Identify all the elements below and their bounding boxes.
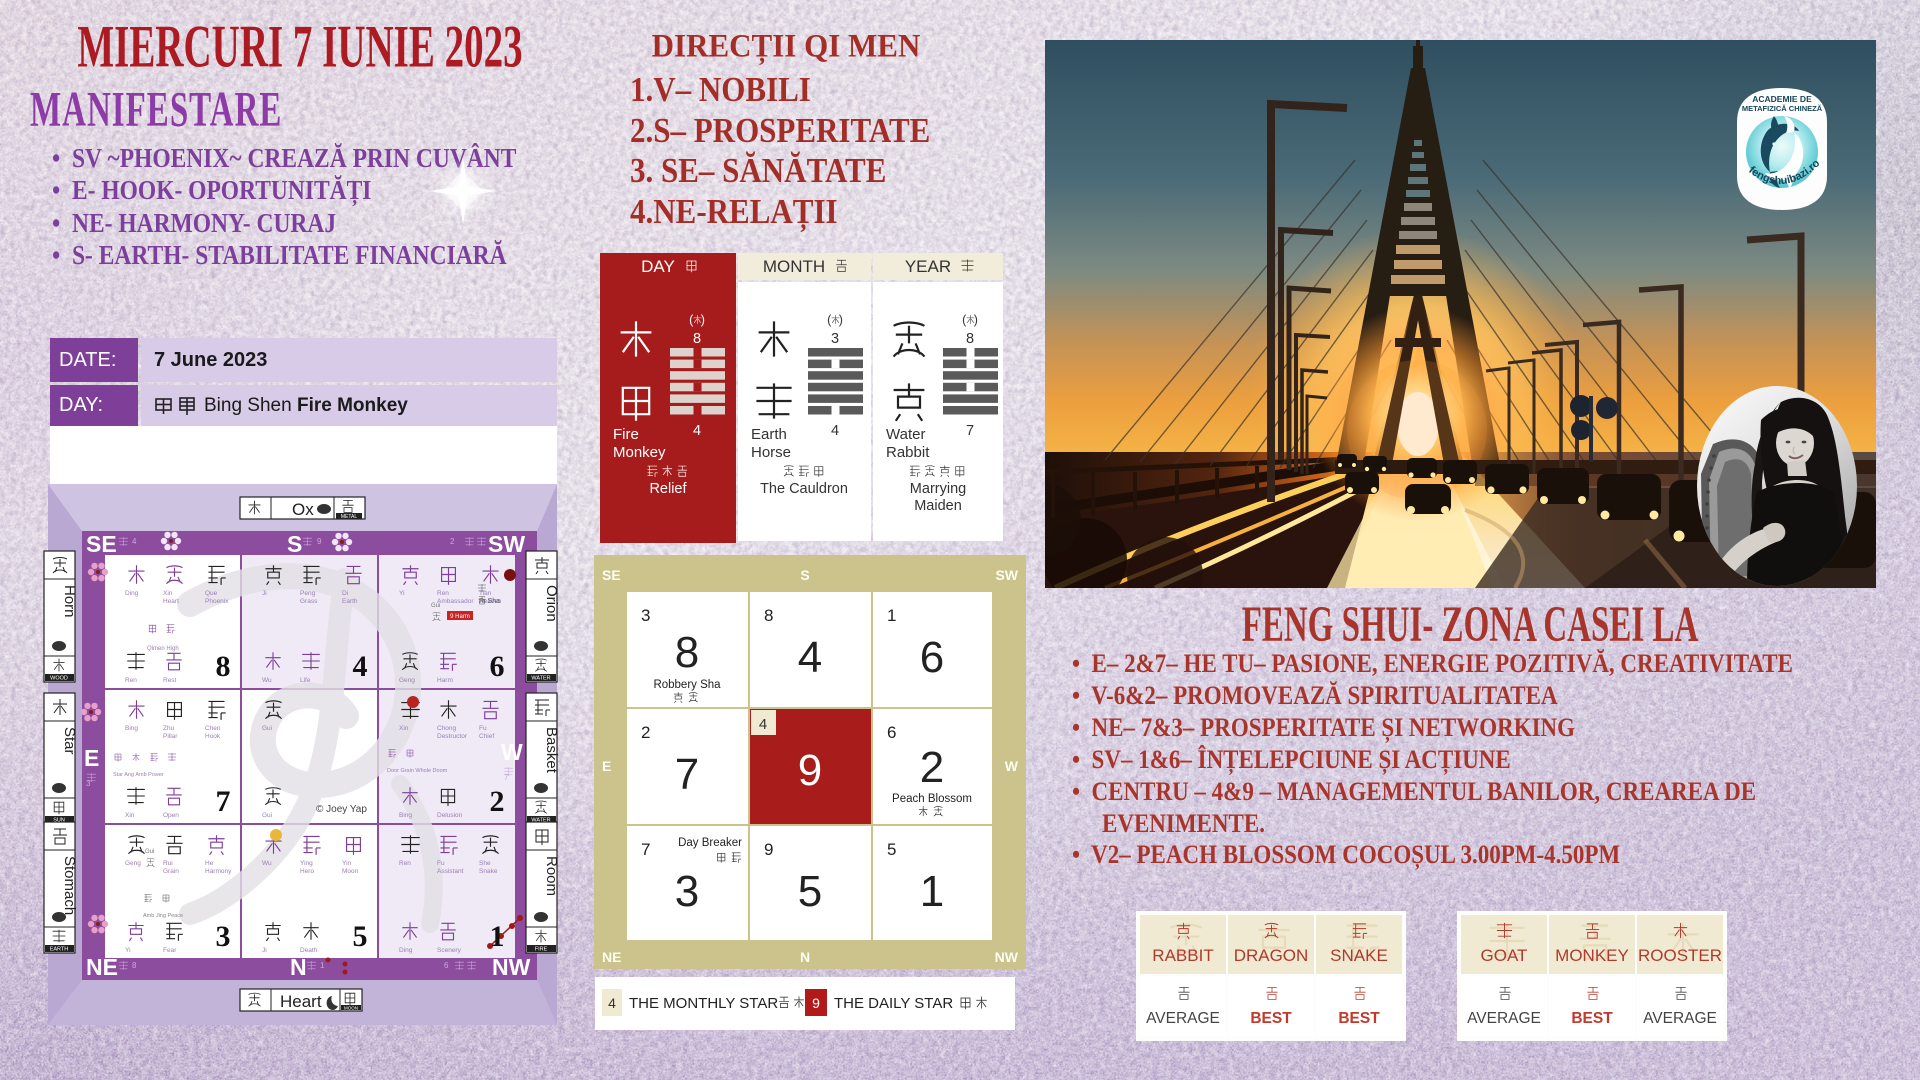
- svg-text:3: 3: [216, 920, 231, 953]
- svg-text:THE DAILY STAR: THE DAILY STAR: [834, 995, 953, 1012]
- svg-text:Chong: Chong: [437, 725, 457, 732]
- svg-text:4: 4: [132, 537, 137, 546]
- svg-text:Yi: Yi: [125, 947, 131, 954]
- svg-text:2: 2: [920, 743, 944, 792]
- svg-text:E: E: [602, 758, 611, 774]
- svg-text:Orion: Orion: [543, 585, 560, 622]
- svg-text:Harm: Harm: [437, 677, 453, 684]
- svg-text:Star Ang Amb Power: Star Ang Amb Power: [113, 772, 164, 778]
- svg-text:ACADEMIE DE: ACADEMIE DE: [1752, 94, 1812, 104]
- svg-text:Life: Life: [300, 677, 311, 684]
- svg-text:Grain: Grain: [163, 868, 179, 875]
- svg-text:Di: Di: [342, 590, 348, 597]
- svg-text:RABBIT: RABBIT: [1152, 946, 1213, 965]
- svg-text:SNAKE: SNAKE: [1330, 946, 1388, 965]
- svg-text:Star: Star: [61, 727, 78, 755]
- svg-text:8: 8: [693, 331, 701, 347]
- svg-text:Fear: Fear: [163, 947, 177, 954]
- svg-text:Marrying: Marrying: [910, 481, 966, 497]
- svg-text:Horse: Horse: [751, 444, 791, 461]
- svg-text:4: 4: [831, 423, 839, 439]
- svg-text:Wu: Wu: [262, 860, 272, 867]
- svg-text:Rui: Rui: [163, 860, 173, 867]
- svg-text:Hero: Hero: [300, 868, 314, 875]
- svg-text:1: 1: [887, 606, 896, 625]
- svg-text:Delusion: Delusion: [437, 812, 463, 819]
- svg-text:5: 5: [887, 840, 896, 859]
- svg-text:( ): ( ): [827, 313, 843, 327]
- svg-text:AVERAGE: AVERAGE: [1643, 1010, 1717, 1027]
- svg-text:DAY: DAY: [641, 257, 675, 276]
- svg-text:Ding: Ding: [399, 947, 413, 954]
- svg-text:4: 4: [353, 650, 368, 683]
- svg-text:Fu: Fu: [479, 725, 487, 732]
- svg-text:Maiden: Maiden: [914, 498, 962, 514]
- svg-text:W: W: [501, 739, 523, 765]
- svg-text:9 Harm: 9 Harm: [450, 614, 470, 620]
- svg-text:Assistant: Assistant: [437, 868, 464, 875]
- svg-text:E: E: [84, 745, 99, 771]
- svg-text:METAFIZICĂ CHINEZĂ: METAFIZICĂ CHINEZĂ: [1742, 104, 1823, 113]
- svg-text:4: 4: [693, 423, 701, 439]
- svg-text:Open: Open: [163, 812, 179, 819]
- svg-text:4: 4: [759, 716, 767, 733]
- svg-text:METAL: METAL: [341, 514, 358, 520]
- svg-text:NW: NW: [995, 949, 1019, 965]
- svg-text:Qimen High: Qimen High: [147, 646, 179, 652]
- svg-text:Gui: Gui: [262, 725, 272, 732]
- svg-text:Gui: Gui: [262, 812, 272, 819]
- svg-text:Ox: Ox: [292, 500, 314, 519]
- svg-text:1: 1: [320, 961, 325, 970]
- svg-text:MONTH: MONTH: [763, 257, 825, 276]
- svg-text:Destructor: Destructor: [437, 733, 468, 740]
- svg-text:8: 8: [966, 331, 974, 347]
- svg-text:7: 7: [641, 840, 650, 859]
- svg-text:4: 4: [798, 633, 822, 682]
- svg-text:Earth: Earth: [751, 426, 787, 443]
- svg-text:Grass: Grass: [300, 598, 318, 605]
- svg-text:Door Grain Whole Doom: Door Grain Whole Doom: [387, 768, 448, 774]
- svg-text:( ): ( ): [962, 313, 978, 327]
- svg-text:Fu: Fu: [437, 860, 445, 867]
- svg-text:Ambassador: Ambassador: [437, 598, 474, 605]
- svg-text:Bing: Bing: [125, 725, 138, 732]
- svg-text:9: 9: [764, 840, 773, 859]
- svg-text:Day Breaker: Day Breaker: [678, 837, 742, 849]
- svg-text:7: 7: [504, 773, 509, 782]
- svg-text:7: 7: [216, 785, 231, 818]
- svg-text:( ): ( ): [689, 313, 705, 327]
- svg-text:9: 9: [317, 537, 322, 546]
- svg-text:MOON: MOON: [344, 1006, 358, 1011]
- svg-text:Gui: Gui: [145, 849, 154, 855]
- svg-text:3: 3: [641, 606, 650, 625]
- svg-text:Que: Que: [205, 590, 218, 597]
- svg-text:BEST: BEST: [1338, 1010, 1380, 1027]
- svg-text:Hook: Hook: [205, 733, 221, 740]
- svg-text:BEST: BEST: [1250, 1010, 1292, 1027]
- svg-text:Ding: Ding: [125, 590, 139, 597]
- svg-text:SW: SW: [995, 567, 1018, 583]
- svg-text:Death: Death: [300, 947, 318, 954]
- svg-text:Heart: Heart: [163, 598, 179, 605]
- svg-text:7: 7: [966, 423, 974, 439]
- svg-text:6: 6: [490, 650, 505, 683]
- svg-text:Ren: Ren: [399, 860, 411, 867]
- svg-text:Heart: Heart: [280, 992, 322, 1011]
- svg-text:8: 8: [132, 961, 137, 970]
- svg-text:Peng: Peng: [300, 590, 316, 597]
- svg-text:S: S: [800, 567, 809, 583]
- svg-text:Geng: Geng: [399, 677, 415, 684]
- svg-text:ROOSTER: ROOSTER: [1638, 946, 1722, 965]
- svg-text:1: 1: [920, 867, 944, 916]
- svg-text:Chief: Chief: [479, 733, 494, 740]
- svg-text:Amb Jing Peace: Amb Jing Peace: [143, 913, 183, 919]
- svg-text:Rest: Rest: [163, 677, 177, 684]
- svg-text:5: 5: [798, 867, 822, 916]
- svg-text:WOOD: WOOD: [50, 676, 68, 682]
- svg-text:AVERAGE: AVERAGE: [1146, 1010, 1220, 1027]
- svg-text:EARTH: EARTH: [50, 947, 69, 953]
- svg-text:MONKEY: MONKEY: [1555, 946, 1629, 965]
- svg-text:Fire: Fire: [613, 426, 639, 443]
- svg-text:N: N: [800, 949, 810, 965]
- svg-text:3: 3: [86, 779, 91, 788]
- svg-text:Phoenix: Phoenix: [205, 598, 229, 605]
- svg-text:S: S: [287, 531, 302, 557]
- svg-text:Scenery: Scenery: [437, 947, 462, 954]
- svg-text:Ren: Ren: [125, 677, 137, 684]
- svg-text:W: W: [1005, 758, 1019, 774]
- svg-text:She: She: [479, 860, 491, 867]
- svg-text:Earth: Earth: [342, 598, 358, 605]
- svg-text:BEST: BEST: [1571, 1010, 1613, 1027]
- svg-text:GOAT: GOAT: [1481, 946, 1528, 965]
- svg-text:8: 8: [216, 650, 231, 683]
- svg-text:1: 1: [490, 920, 505, 953]
- svg-text:Gui: Gui: [431, 603, 440, 609]
- svg-text:2: 2: [641, 723, 650, 742]
- svg-text:Yin: Yin: [342, 860, 352, 867]
- svg-text:Xin: Xin: [163, 590, 173, 597]
- svg-text:WATER: WATER: [531, 676, 550, 682]
- svg-text:DRAGON: DRAGON: [1234, 946, 1309, 965]
- svg-text:SW: SW: [488, 531, 525, 557]
- svg-text:Zhu: Zhu: [163, 725, 175, 732]
- svg-text:8: 8: [764, 606, 773, 625]
- svg-text:6: 6: [444, 961, 449, 970]
- svg-text:NE: NE: [602, 949, 621, 965]
- svg-text:© Joey Yap: © Joey Yap: [316, 804, 367, 815]
- svg-text:YEAR: YEAR: [905, 257, 951, 276]
- svg-text:Peach Blossom: Peach Blossom: [892, 793, 972, 805]
- svg-text:Yi: Yi: [399, 590, 405, 597]
- svg-text:N: N: [290, 954, 307, 980]
- svg-text:Stomach: Stomach: [61, 856, 78, 915]
- svg-text:The Cauldron: The Cauldron: [760, 481, 848, 497]
- svg-text:He: He: [205, 860, 214, 867]
- svg-text:NE: NE: [86, 954, 118, 980]
- svg-text:9: 9: [812, 995, 820, 1011]
- svg-text:8: 8: [675, 628, 699, 677]
- svg-text:Robbery Sha: Robbery Sha: [653, 679, 721, 691]
- svg-text:6: 6: [920, 633, 944, 682]
- svg-text:Bing: Bing: [399, 812, 412, 819]
- svg-text:Harmony: Harmony: [205, 868, 232, 875]
- svg-text:9: 9: [798, 746, 822, 795]
- svg-text:Ying: Ying: [300, 860, 313, 867]
- svg-text:5: 5: [353, 920, 368, 953]
- svg-text:Wu: Wu: [262, 677, 272, 684]
- svg-text:Pillar: Pillar: [163, 733, 178, 740]
- svg-text:Ren: Ren: [437, 590, 449, 597]
- svg-text:2: 2: [450, 537, 455, 546]
- svg-text:Rabbit: Rabbit: [886, 444, 930, 461]
- svg-text:SE: SE: [86, 531, 117, 557]
- svg-text:6: 6: [887, 723, 896, 742]
- svg-text:Horn: Horn: [61, 585, 78, 618]
- svg-text:Monkey: Monkey: [613, 444, 666, 461]
- svg-text:Water: Water: [886, 426, 925, 443]
- svg-text:FIRE: FIRE: [535, 947, 548, 953]
- svg-text:NW: NW: [492, 954, 531, 980]
- svg-text:4: 4: [608, 995, 616, 1011]
- svg-text:SE: SE: [602, 567, 621, 583]
- svg-text:Ji: Ji: [262, 590, 267, 597]
- svg-text:Ji: Ji: [262, 947, 267, 954]
- svg-text:Moon: Moon: [342, 868, 359, 875]
- svg-text:Xin: Xin: [125, 812, 135, 819]
- svg-text:3: 3: [675, 867, 699, 916]
- svg-text:Geng: Geng: [125, 860, 141, 867]
- svg-text:Relief: Relief: [649, 481, 687, 497]
- svg-text:Basket: Basket: [543, 727, 560, 774]
- svg-text:Chen: Chen: [205, 725, 221, 732]
- svg-text:THE MONTHLY STAR: THE MONTHLY STAR: [629, 995, 778, 1012]
- svg-text:2: 2: [490, 785, 505, 818]
- svg-text:AVERAGE: AVERAGE: [1467, 1010, 1541, 1027]
- svg-text:Room: Room: [543, 856, 560, 896]
- svg-text:3: 3: [831, 331, 839, 347]
- svg-text:Snake: Snake: [479, 868, 498, 875]
- svg-text:Xin: Xin: [399, 725, 409, 732]
- svg-text:7: 7: [675, 750, 699, 799]
